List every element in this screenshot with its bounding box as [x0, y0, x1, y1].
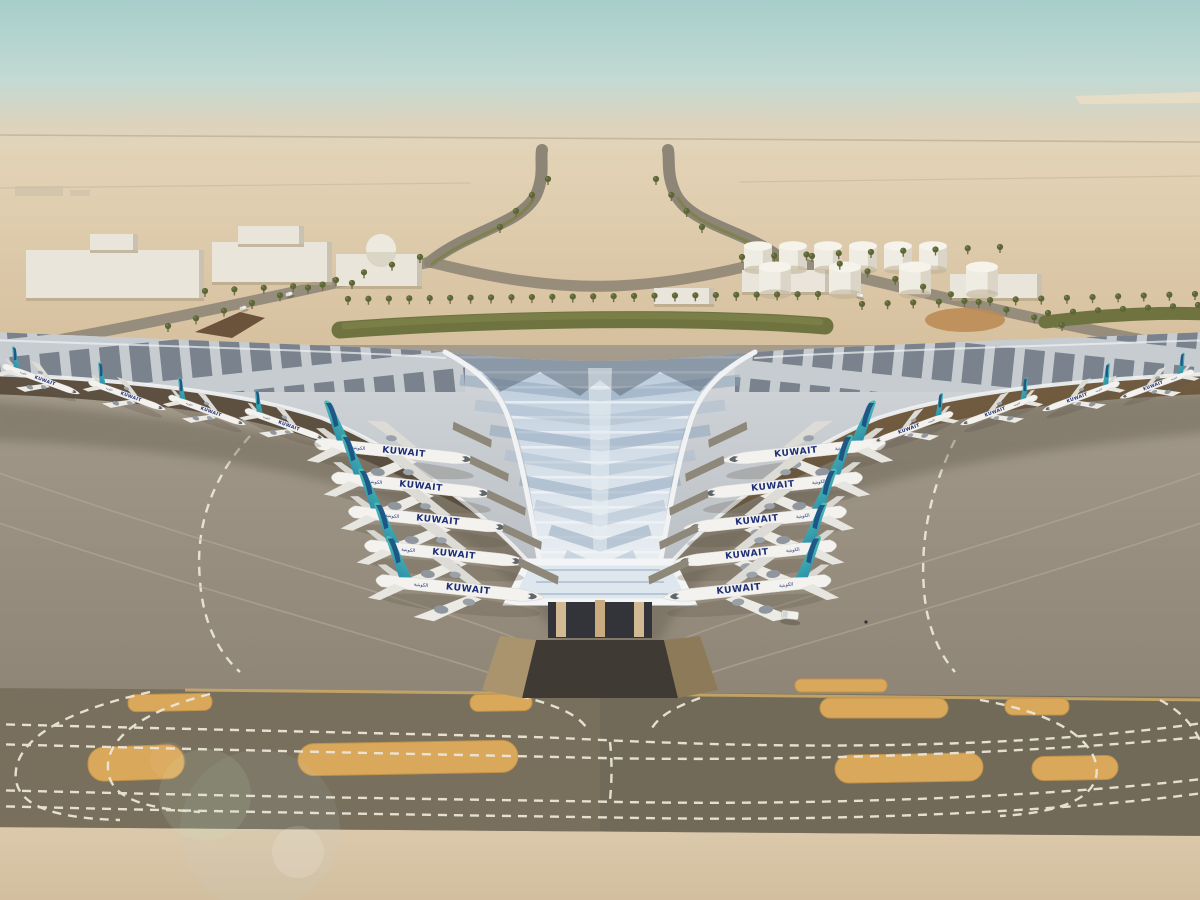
- taxiway-island: [1032, 755, 1118, 780]
- scene-canvas: KUWAITالكويتيةKUWAITالكويتيةKUWAITالكويت…: [0, 0, 1200, 900]
- storage-tank: [829, 262, 861, 299]
- storage-tank: [899, 262, 931, 299]
- foreground-sand: [0, 827, 1200, 900]
- taxiway-island: [298, 740, 519, 776]
- warehouse-building: [212, 242, 332, 285]
- airport-aerial-rendering: KUWAITالكويتيةKUWAITالكويتيةKUWAITالكويت…: [0, 0, 1200, 900]
- entrance-ramp: [522, 640, 678, 698]
- apex-column: [595, 600, 605, 637]
- storage-tank: [966, 262, 998, 299]
- sand-mound: [925, 308, 1005, 332]
- warehouse-building: [90, 234, 138, 253]
- taxiway-island: [128, 693, 212, 711]
- apex-column: [556, 602, 566, 637]
- taxiway-island: [795, 679, 887, 692]
- warehouse-building: [26, 250, 204, 301]
- pedestrian: [864, 620, 867, 623]
- taxiway-island: [820, 698, 948, 718]
- warehouse-building: [238, 226, 304, 247]
- apex-column: [634, 602, 644, 637]
- warehouse-building: [654, 288, 714, 307]
